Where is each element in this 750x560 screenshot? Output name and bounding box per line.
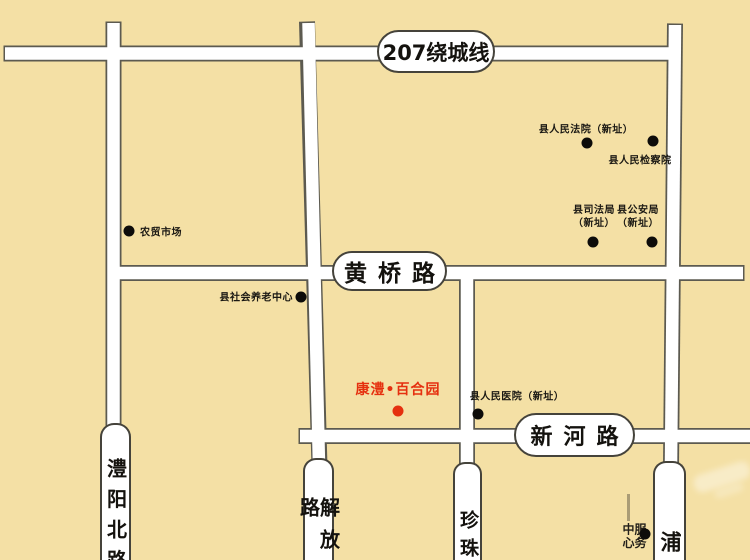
- road-label-xinhe: 新河路: [514, 413, 635, 457]
- poi-dot-service-center: [640, 529, 651, 540]
- poi-label-procuratorate: 县人民检察院: [609, 152, 672, 167]
- poi-label-court: 县人民法院（新址）: [539, 121, 634, 136]
- poi-label-police-bureau-line1: 县公安局: [617, 204, 659, 217]
- road-label-pu-text: 浦: [659, 531, 680, 560]
- poi-label-police-bureau-line2: （新址）: [617, 217, 659, 230]
- road-label-zhenzhu: 珍珠: [453, 462, 482, 560]
- poi-dot-police-bureau: [647, 237, 658, 248]
- poi-dot-hospital: [473, 409, 484, 420]
- poi-dot-justice-bureau: [588, 237, 599, 248]
- road-label-liyang-north-text: 澧阳北路: [106, 458, 126, 560]
- road-label-jiefang: 解放路: [303, 458, 334, 560]
- road-label-ring: 207绕城线: [377, 30, 495, 73]
- road-label-huangqiao: 黄桥路: [332, 251, 447, 291]
- project-label: 康澧•百合园: [356, 379, 441, 399]
- poi-label-justice-bureau-line2: （新址）: [573, 217, 615, 230]
- poi-dot-farmers-market: [124, 226, 135, 237]
- road-label-pu: 浦: [653, 461, 686, 560]
- location-map: 207绕城线 黄桥路 新河路 澧阳北路 解放路 珍珠 浦 县人民法院（新址） 县…: [0, 0, 750, 560]
- road-label-zhenzhu-text: 珍珠: [458, 510, 477, 560]
- project-dot: [393, 406, 404, 417]
- poi-label-hospital: 县人民医院（新址）: [470, 388, 565, 403]
- road-label-jiefang-text: 解放路: [299, 497, 339, 560]
- road-label-ring-text: 207绕城线: [383, 37, 490, 67]
- road-label-huangqiao-text: 黄桥路: [344, 254, 446, 288]
- poi-dot-elderly-center: [296, 292, 307, 303]
- poi-dot-court: [582, 138, 593, 149]
- poi-dot-procuratorate: [648, 136, 659, 147]
- road-label-xinhe-text: 新河路: [530, 419, 629, 451]
- poi-label-police-bureau: 县公安局 （新址）: [617, 204, 659, 230]
- poi-label-elderly-center: 县社会养老中心: [220, 289, 294, 304]
- poi-label-justice-bureau-line1: 县司法局: [573, 204, 615, 217]
- service-center-leader-line: [627, 494, 630, 521]
- poi-label-farmers-market: 农贸市场: [140, 224, 182, 239]
- road-label-liyang-north: 澧阳北路: [100, 423, 131, 560]
- poi-label-justice-bureau: 县司法局 （新址）: [573, 204, 615, 230]
